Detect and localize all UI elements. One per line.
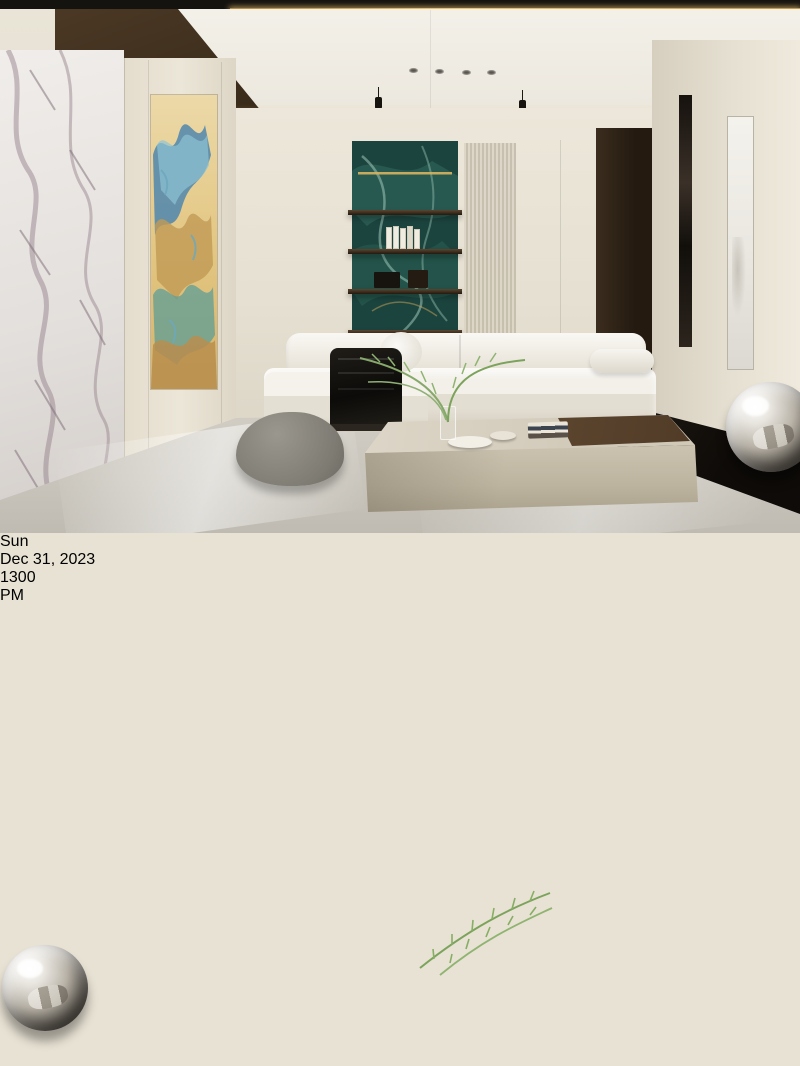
shelf-decor-object bbox=[408, 270, 428, 288]
landscape-art-panel-left bbox=[151, 95, 217, 389]
linear-led-light bbox=[145, 554, 705, 560]
recessed-spotlight bbox=[409, 68, 418, 73]
fern-plant bbox=[340, 330, 540, 425]
book-spine bbox=[414, 229, 420, 249]
gold-shanshui-painting bbox=[151, 95, 217, 389]
recessed-spotlight bbox=[435, 69, 444, 74]
ceiling-seam bbox=[430, 10, 431, 112]
book-spine bbox=[386, 227, 392, 249]
armrest-cushion bbox=[590, 349, 654, 373]
tv-flip-clock-screen: Sun Dec 31, 2023 1300 PM bbox=[0, 533, 95, 605]
mirror-inset bbox=[727, 116, 754, 370]
linear-led-light bbox=[112, 573, 748, 584]
niche-shelf bbox=[348, 210, 462, 215]
book-spine bbox=[400, 228, 406, 249]
black-marble-strip bbox=[679, 95, 692, 347]
clock-meridiem-label: PM bbox=[0, 587, 95, 605]
clock-date-label: Dec 31, 2023 bbox=[0, 551, 95, 569]
two-panel-interior-render: Sun Dec 31, 2023 1300 PM bbox=[0, 0, 800, 1066]
clock-day-label: Sun bbox=[0, 533, 95, 551]
tv-wall-scene: Sun Dec 31, 2023 1300 PM bbox=[0, 533, 800, 1066]
clock-minute: 00 bbox=[18, 569, 36, 586]
clock-hour: 13 bbox=[0, 569, 18, 586]
niche-shelf bbox=[348, 289, 462, 294]
book-spine bbox=[407, 226, 413, 249]
book-spine bbox=[393, 226, 399, 249]
tv-screen: Sun Dec 31, 2023 1300 PM bbox=[0, 533, 95, 605]
recessed-spotlight bbox=[487, 70, 496, 75]
recessed-spotlight bbox=[462, 70, 471, 75]
niche-shelf bbox=[348, 249, 462, 254]
elephant-plush-head bbox=[300, 428, 352, 486]
hanging-plant bbox=[380, 883, 555, 983]
flip-clock-digits: 1300 bbox=[0, 569, 95, 587]
marble-wall bbox=[0, 50, 124, 508]
fluted-panel bbox=[464, 143, 516, 337]
bowl bbox=[490, 431, 516, 440]
shelf-decor-object bbox=[374, 272, 400, 288]
glass-sphere-decor bbox=[2, 945, 88, 1031]
living-room-scene bbox=[0, 0, 800, 533]
books-on-shelf bbox=[386, 226, 420, 249]
marble-veins bbox=[0, 50, 124, 508]
